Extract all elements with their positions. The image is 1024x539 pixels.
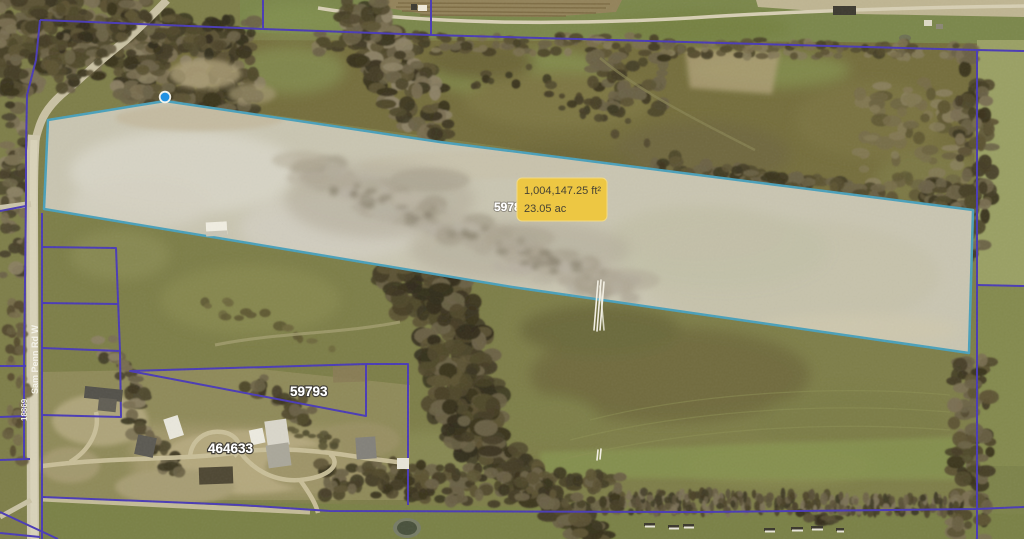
svg-text:23.05 ac: 23.05 ac [524,203,567,215]
svg-text:Sam Penn Rd W: Sam Penn Rd W [30,324,40,394]
svg-text:1,004,147.25 ft²: 1,004,147.25 ft² [524,185,601,197]
svg-text:18869: 18869 [20,398,29,421]
svg-text:59793: 59793 [290,384,328,399]
svg-text:464633: 464633 [208,441,254,456]
